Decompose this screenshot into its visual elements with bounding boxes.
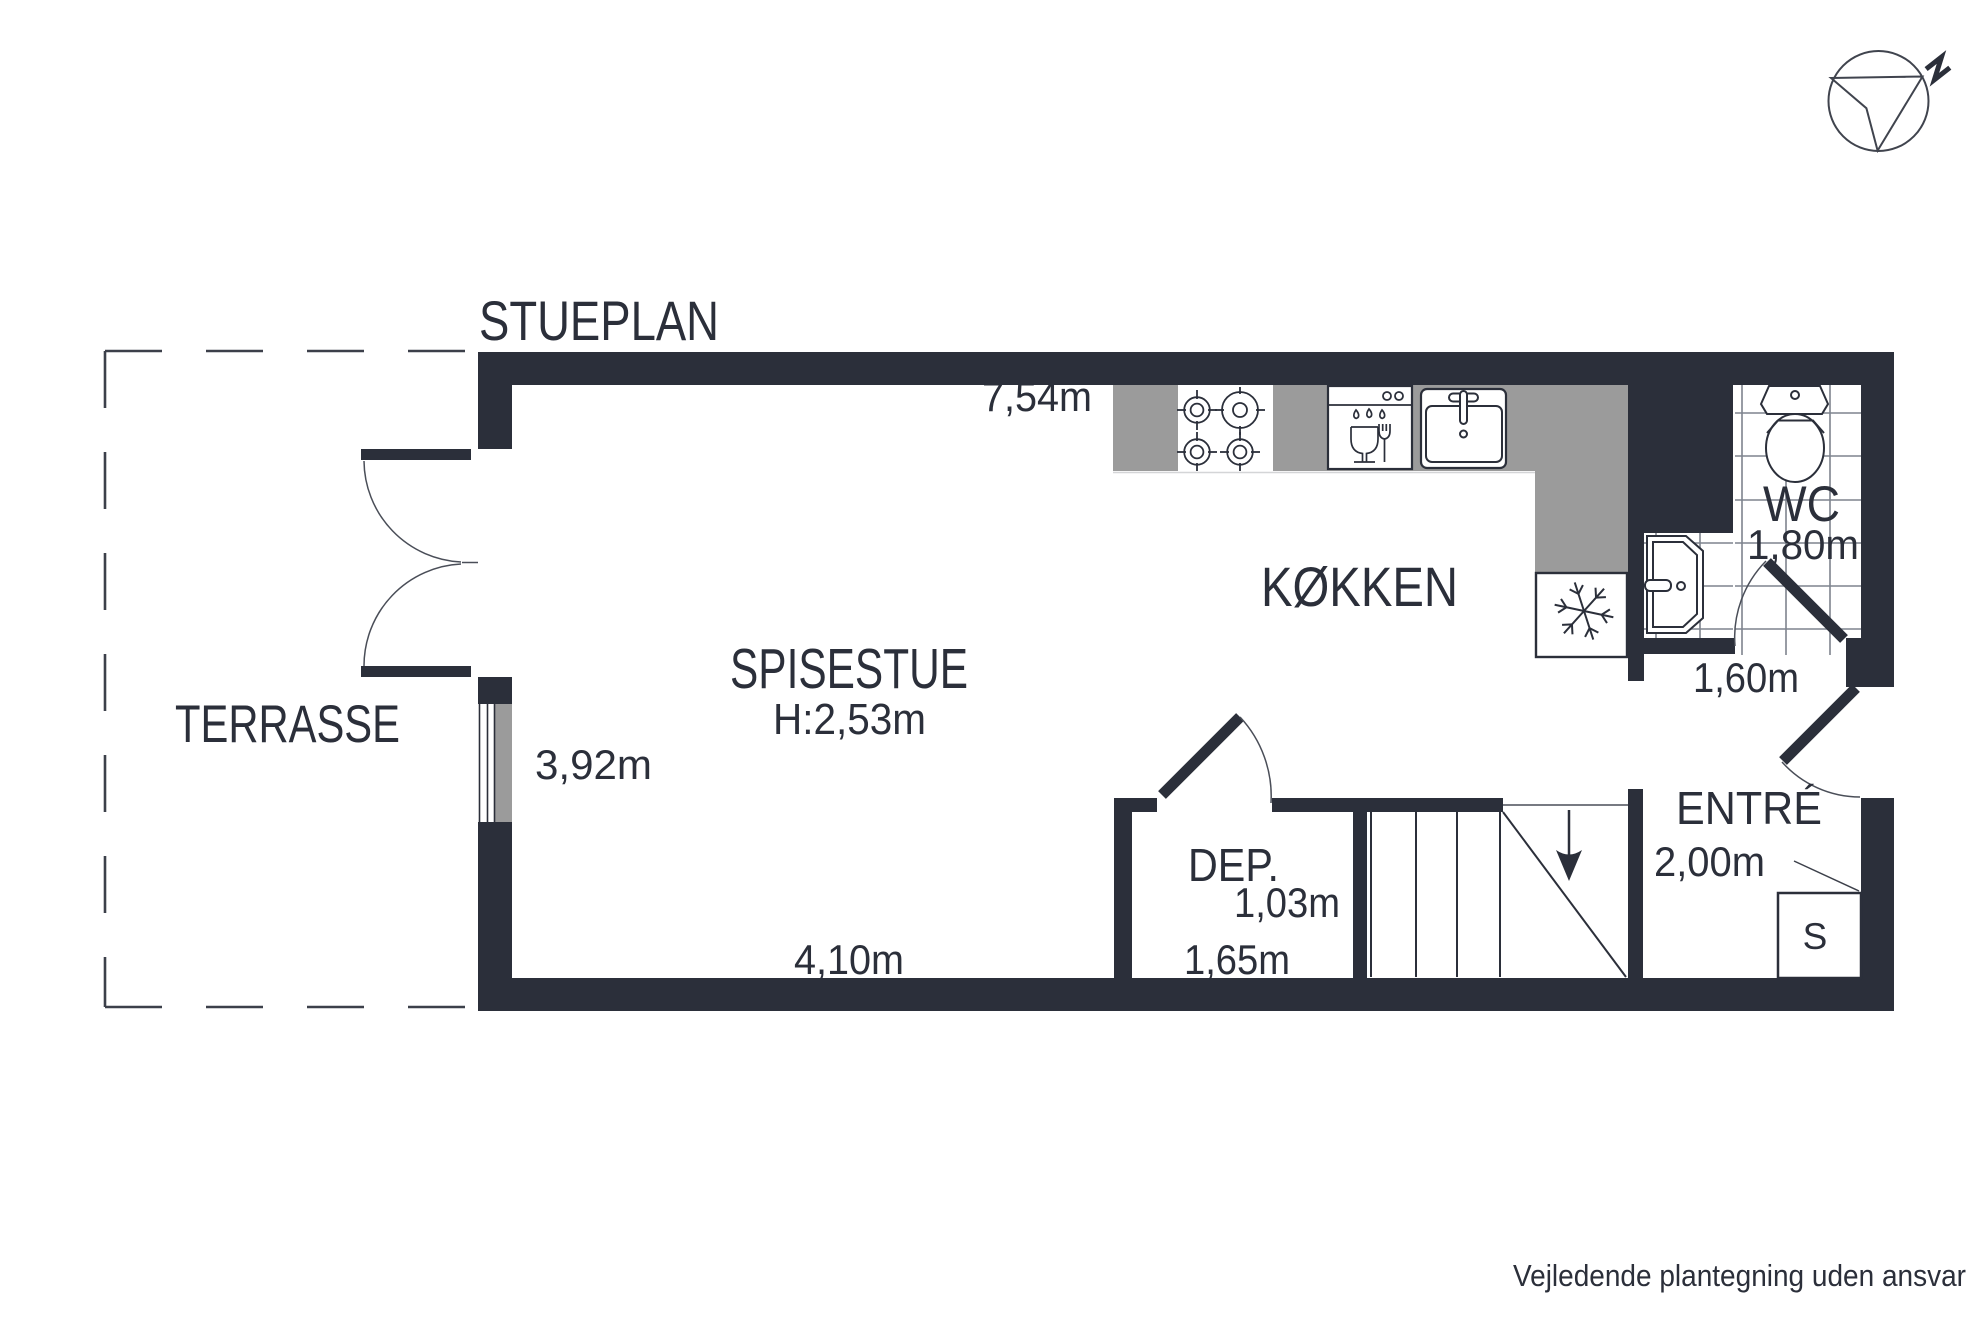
svg-text:2,00m: 2,00m bbox=[1654, 838, 1765, 885]
svg-text:3,92m: 3,92m bbox=[535, 741, 652, 788]
svg-text:4,10m: 4,10m bbox=[794, 936, 904, 983]
svg-text:H:2,53m: H:2,53m bbox=[773, 695, 926, 744]
svg-text:ENTRÉ: ENTRÉ bbox=[1676, 782, 1822, 834]
svg-text:TERRASSE: TERRASSE bbox=[175, 695, 400, 754]
svg-text:S: S bbox=[1803, 916, 1828, 957]
svg-text:1,80m: 1,80m bbox=[1747, 521, 1859, 568]
svg-text:SPISESTUE: SPISESTUE bbox=[730, 637, 968, 701]
svg-text:KØKKEN: KØKKEN bbox=[1261, 555, 1458, 618]
svg-text:1,65m: 1,65m bbox=[1184, 936, 1290, 983]
svg-text:1,60m: 1,60m bbox=[1693, 654, 1799, 701]
svg-text:7,54m: 7,54m bbox=[982, 373, 1092, 420]
svg-text:STUEPLAN: STUEPLAN bbox=[479, 289, 719, 352]
svg-text:Vejledende plantegning uden an: Vejledende plantegning uden ansvar bbox=[1513, 1258, 1966, 1293]
svg-text:1,03m: 1,03m bbox=[1234, 879, 1340, 926]
